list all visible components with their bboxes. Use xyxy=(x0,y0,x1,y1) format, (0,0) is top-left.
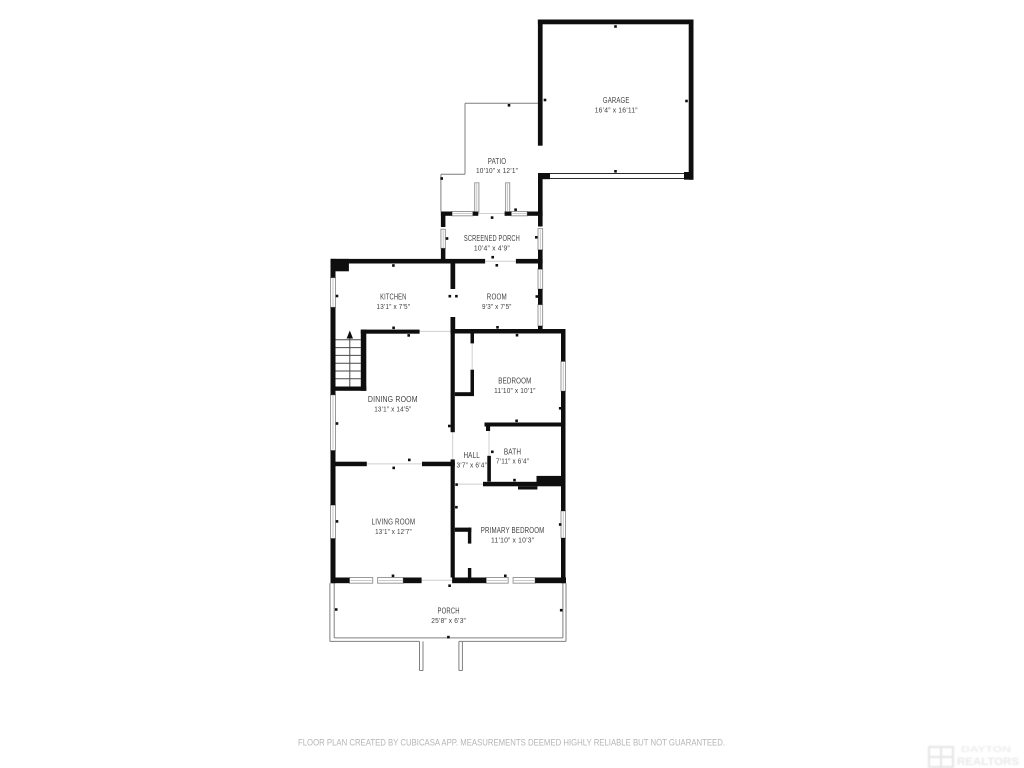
svg-text:16’4” x 16’11”: 16’4” x 16’11” xyxy=(595,106,638,115)
svg-text:7’11” x 6’4”: 7’11” x 6’4” xyxy=(496,457,529,466)
svg-text:DINING ROOM: DINING ROOM xyxy=(368,395,418,404)
svg-text:13’1” x 14’5”: 13’1” x 14’5” xyxy=(374,404,411,413)
svg-text:10’4” x 4’9”: 10’4” x 4’9” xyxy=(474,243,510,252)
svg-text:BEDROOM: BEDROOM xyxy=(498,377,531,386)
svg-text:KITCHEN: KITCHEN xyxy=(380,293,406,302)
svg-text:GARAGE: GARAGE xyxy=(603,96,630,105)
svg-text:PATIO: PATIO xyxy=(488,157,506,166)
svg-text:DAYTON: DAYTON xyxy=(961,745,1011,754)
svg-text:13’1” x 12’7”: 13’1” x 12’7” xyxy=(375,527,412,536)
svg-text:PRIMARY BEDROOM: PRIMARY BEDROOM xyxy=(481,526,545,535)
svg-text:SCREENED PORCH: SCREENED PORCH xyxy=(464,234,520,243)
svg-text:ROOM: ROOM xyxy=(487,293,507,302)
svg-text:HALL: HALL xyxy=(463,451,480,460)
svg-text:3’7” x 6’4”: 3’7” x 6’4” xyxy=(456,461,487,470)
svg-text:FLOOR PLAN CREATED BY CUBICASA: FLOOR PLAN CREATED BY CUBICASA APP. MEAS… xyxy=(298,737,725,747)
svg-text:BATH: BATH xyxy=(504,447,521,456)
svg-text:11’10” x 10’1”: 11’10” x 10’1” xyxy=(494,386,536,395)
svg-text:PORCH: PORCH xyxy=(438,606,460,615)
svg-text:10’10” x 12’1”: 10’10” x 12’1” xyxy=(476,166,518,175)
svg-text:9’3” x 7’5”: 9’3” x 7’5” xyxy=(482,302,512,311)
svg-text:11’10” x 10’3”: 11’10” x 10’3” xyxy=(491,536,534,545)
svg-text:13’1” x 7’5”: 13’1” x 7’5” xyxy=(377,302,411,311)
svg-text:LIVING ROOM: LIVING ROOM xyxy=(372,518,416,527)
svg-text:25’8” x 6’3”: 25’8” x 6’3” xyxy=(431,616,466,625)
svg-text:REALTORS: REALTORS xyxy=(957,756,1019,768)
